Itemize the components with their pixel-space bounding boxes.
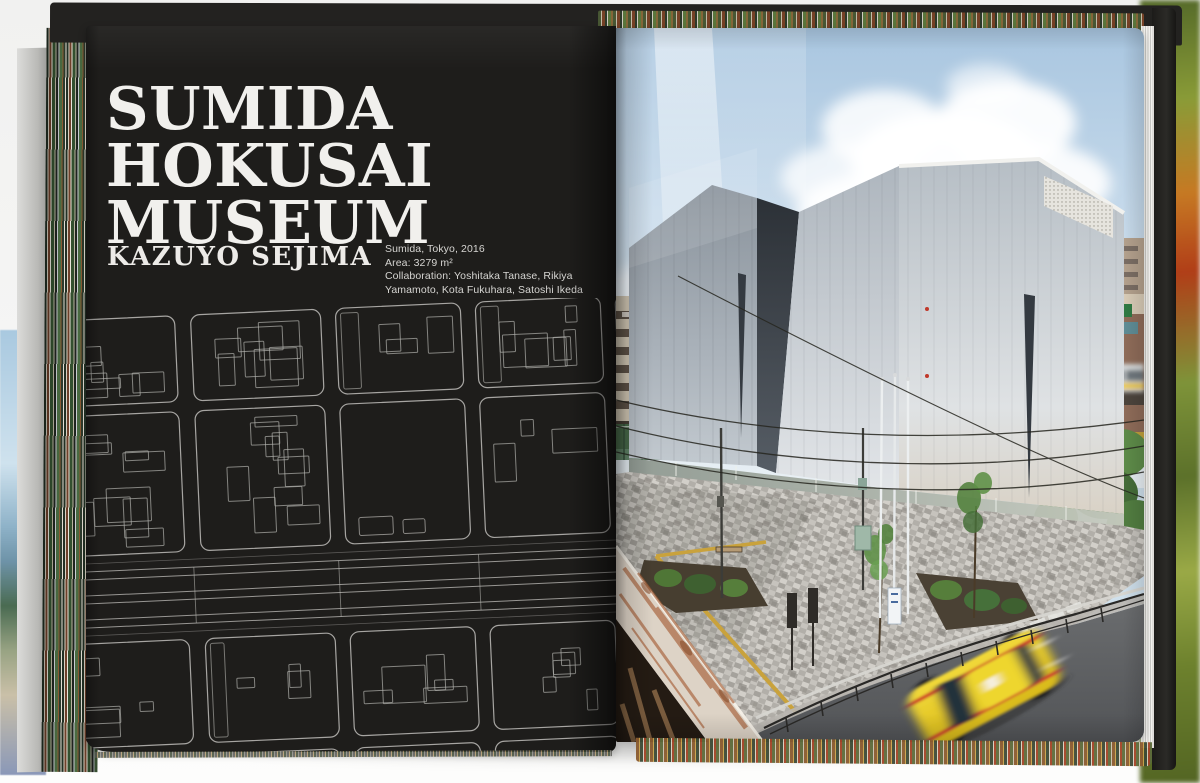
title-line-1: SUMIDA [106,80,433,137]
museum-building [629,148,1124,528]
title-line-2: HOKUSAI [106,137,433,194]
architect-name: KAZUYO SEJIMA [107,242,372,272]
project-details: Sumida, Tokyo, 2016 Area: 3279 m² Collab… [385,243,585,297]
right-page-photo [616,28,1144,742]
book-cover-right [1152,8,1176,770]
facade-light [925,307,929,311]
museum-photograph [616,28,1144,742]
book-photo-scene: SUMIDA HOKUSAI MUSEUM KAZUYO SEJIMA Sumi… [0,0,1200,783]
detail-area: Area: 3279 m² [385,257,585,271]
page-bottom-edges-right [636,738,1152,767]
site-map-drawing [86,298,616,752]
detail-location: Sumida, Tokyo, 2016 [385,243,585,257]
page-title: SUMIDA HOKUSAI MUSEUM [106,80,433,251]
left-page: SUMIDA HOKUSAI MUSEUM KAZUYO SEJIMA Sumi… [86,26,616,752]
bench [716,547,742,552]
utility-cabinet [855,526,871,550]
plaza-pole [721,428,722,598]
detail-collaboration: Collaboration: Yoshitaka Tanase, Rikiya … [385,270,585,297]
facade-light [925,374,929,378]
